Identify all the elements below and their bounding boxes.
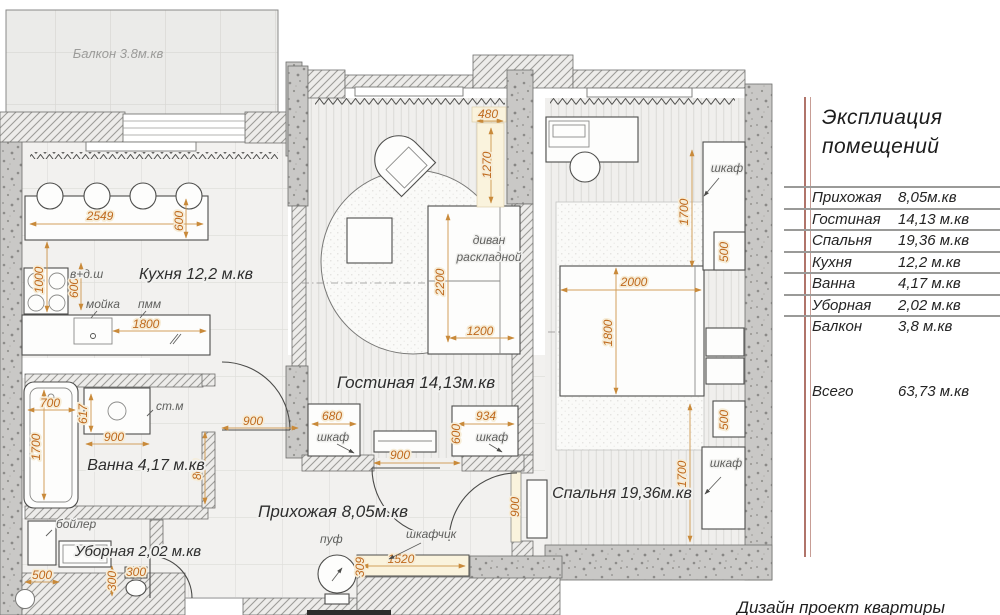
legend-row: Прихожая 8,05м.кв bbox=[784, 186, 1000, 208]
dim-tub-length: 1700 bbox=[29, 433, 43, 460]
floor-plan-drawing: 2549 600 1000 600 1800 700 1700 617 900 … bbox=[0, 0, 790, 615]
dim-closet-right: 934 bbox=[476, 409, 496, 423]
washer-label: ст.м bbox=[156, 399, 183, 413]
dishwasher-label: пмм bbox=[138, 297, 161, 311]
legend-row: Уборная 2,02 м.кв bbox=[784, 294, 1000, 316]
wc-label: Уборная 2,02 м.кв bbox=[74, 543, 201, 560]
wardrobe-label-bedroom-top: шкаф bbox=[711, 161, 743, 175]
bedroom-window-sill bbox=[587, 88, 692, 97]
washing-machine bbox=[84, 388, 150, 434]
legend-room-area: 14,13 м.кв bbox=[898, 211, 969, 228]
legend-total-area: 63,73 м.кв bbox=[898, 383, 969, 400]
dim-wc-width: 500 bbox=[32, 568, 52, 582]
dim-closet-bottom-depth: 500 bbox=[717, 410, 731, 430]
bedroom-radiator-zigzag bbox=[550, 98, 735, 105]
boiler-label: бойлер bbox=[56, 517, 97, 531]
legend-room-name: Уборная bbox=[812, 297, 898, 314]
dim-living-side: 1270 bbox=[480, 151, 494, 178]
hood-label: в+д.ш bbox=[70, 267, 103, 281]
dim-living-length: 2200 bbox=[433, 268, 447, 296]
wall-bedroom-bottom bbox=[545, 545, 772, 580]
dim-cabinet-depth: 309 bbox=[353, 557, 367, 577]
footer-caption: Дизайн проект квартиры bbox=[737, 598, 977, 615]
dim-bar-width: 2549 bbox=[86, 209, 114, 223]
coffee-table bbox=[347, 218, 392, 263]
wall-living-left-low bbox=[286, 366, 308, 458]
kitchen-counter bbox=[22, 315, 210, 355]
legend-room-name: Кухня bbox=[812, 254, 898, 271]
dim-toilet: 300 bbox=[126, 565, 146, 579]
wall-living-bottom-b bbox=[462, 455, 524, 471]
legend-room-area: 8,05м.кв bbox=[898, 189, 957, 206]
wall-bedroom-top bbox=[573, 70, 745, 88]
nightstand-bottom bbox=[706, 358, 744, 384]
dim-bed-length: 1800 bbox=[601, 319, 615, 346]
wall-hall-bottom-concrete bbox=[470, 556, 562, 578]
legend-room-area: 2,02 м.кв bbox=[898, 297, 961, 314]
sofa-label-2: раскладной bbox=[455, 250, 521, 264]
dim-washer-width: 900 bbox=[104, 430, 124, 444]
wall-bath-right-a bbox=[202, 374, 215, 386]
kitchen-radiator-zigzag bbox=[30, 152, 278, 159]
dim-closet-top-depth: 500 bbox=[717, 242, 731, 262]
dim-sofa: 1200 bbox=[467, 324, 494, 338]
dim-stove: 1000 bbox=[32, 266, 46, 293]
living-radiator-zigzag bbox=[315, 98, 505, 105]
dim-living-top: 480 bbox=[478, 107, 498, 121]
legend-row: Кухня 12,2 м.кв bbox=[784, 251, 1000, 273]
cabinet-label: шкафчик bbox=[406, 527, 458, 541]
legend-total-label: Всего bbox=[812, 383, 898, 400]
legend-room-name: Ванна bbox=[812, 275, 898, 292]
dim-bed-width: 2000 bbox=[620, 275, 648, 289]
floor-plan-page: 2549 600 1000 600 1800 700 1700 617 900 … bbox=[0, 0, 1000, 615]
bar-stool bbox=[37, 183, 63, 209]
legend-room-name: Спальня bbox=[812, 232, 898, 249]
legend-row: Гостиная 14,13 м.кв bbox=[784, 208, 1000, 230]
wall-living-top-a bbox=[308, 70, 345, 98]
legend-row: Ванна 4,17 м.кв bbox=[784, 272, 1000, 294]
dim-bedroom-door: 900 bbox=[508, 497, 522, 517]
legend-table: Прихожая 8,05м.кв Гостиная 14,13 м.кв Сп… bbox=[784, 186, 1000, 337]
dim-closet-right-depth: 600 bbox=[449, 424, 463, 444]
pouf-label: пуф bbox=[320, 532, 343, 546]
living-window-sill bbox=[355, 87, 463, 96]
wall-living-left-top bbox=[288, 66, 308, 206]
bar-stool bbox=[130, 183, 156, 209]
legend-title: Эксплиация помещений bbox=[822, 103, 942, 161]
legend-room-name: Балкон bbox=[812, 318, 898, 335]
dim-washer-depth: 617 bbox=[76, 403, 90, 424]
legend-room-name: Прихожая bbox=[812, 189, 898, 206]
dim-bedroom-closet-top: 1700 bbox=[677, 198, 691, 225]
bath-label: Ванна 4,17 м.кв bbox=[87, 457, 204, 474]
wall-balcony-right bbox=[245, 112, 288, 143]
bottom-black-bar bbox=[307, 610, 391, 615]
bar-stool bbox=[176, 183, 202, 209]
dim-tub-width: 700 bbox=[40, 396, 60, 410]
boiler bbox=[28, 521, 56, 565]
wall-living-bottom-a bbox=[302, 455, 374, 471]
nightstand-top bbox=[706, 328, 744, 356]
pouf-step bbox=[325, 594, 349, 604]
legend-room-area: 4,17 м.кв bbox=[898, 275, 961, 292]
living-label: Гостиная 14,13м.кв bbox=[337, 373, 495, 392]
legend-room-area: 19,36 м.кв bbox=[898, 232, 969, 249]
dim-wc-depth: 300 bbox=[105, 571, 119, 591]
balcony-floor bbox=[6, 10, 278, 116]
dim-bedroom-closet-bottom: 1700 bbox=[675, 460, 689, 487]
balcony-label: Балкон 3.8м.кв bbox=[73, 46, 164, 61]
sink-label: мойка bbox=[86, 297, 120, 311]
legend-total-row: Всего 63,73 м.кв bbox=[784, 383, 1000, 400]
dim-bar-depth: 600 bbox=[172, 211, 186, 231]
dim-bath-door: 900 bbox=[243, 414, 263, 428]
legend-room-area: 3,8 м.кв bbox=[898, 318, 952, 335]
wall-right-concrete bbox=[745, 84, 772, 580]
wall-column-mid bbox=[507, 70, 533, 204]
wardrobe-label-bedroom-bottom: шкаф bbox=[710, 456, 742, 470]
bedroom-door-panel bbox=[527, 480, 547, 538]
dim-cabinet-length: 1520 bbox=[388, 552, 415, 566]
wall-living-top-band bbox=[345, 75, 473, 88]
wall-kitchen-living bbox=[292, 206, 306, 366]
dim-counter: 1800 bbox=[133, 317, 160, 331]
bedroom-label: Спальня 19,36м.кв bbox=[552, 485, 692, 502]
toilet-bowl bbox=[126, 580, 146, 596]
sofa-label-1: диван bbox=[473, 233, 506, 247]
kitchen-window-sill bbox=[86, 142, 196, 151]
bar-stool bbox=[84, 183, 110, 209]
wardrobe-label-living-left: шкаф bbox=[317, 430, 349, 444]
legend-row: Спальня 19,36 м.кв bbox=[784, 229, 1000, 251]
legend-room-area: 12,2 м.кв bbox=[898, 254, 961, 271]
kitchen-label: Кухня 12,2 м.кв bbox=[139, 266, 253, 283]
legend-title-line1: Эксплиация bbox=[822, 103, 942, 132]
hall-label: Прихожая 8,05м.кв bbox=[258, 502, 408, 521]
legend-title-line2: помещений bbox=[822, 132, 942, 161]
desk-chair bbox=[570, 152, 600, 182]
wall-left-concrete bbox=[0, 138, 22, 615]
legend-room-name: Гостиная bbox=[812, 211, 898, 228]
dim-living-door: 900 bbox=[390, 448, 410, 462]
wardrobe-label-living-right: шкаф bbox=[476, 430, 508, 444]
dim-closet-left: 680 bbox=[322, 409, 342, 423]
legend-row: Балкон 3,8 м.кв bbox=[784, 315, 1000, 337]
drain-circle bbox=[16, 590, 35, 609]
wall-balcony-left bbox=[0, 112, 125, 142]
